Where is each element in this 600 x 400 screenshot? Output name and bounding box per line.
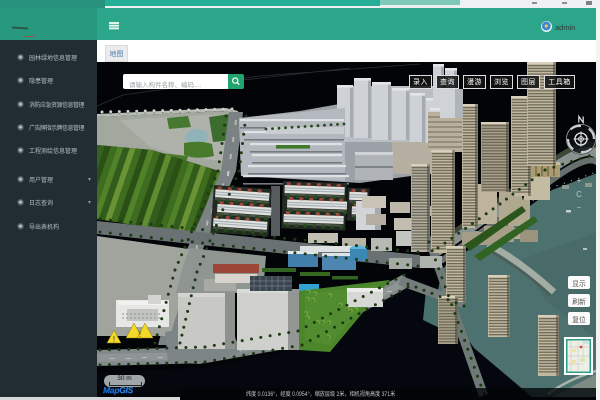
svg-text:!: ! (139, 330, 141, 339)
svg-text:!: ! (113, 335, 115, 344)
